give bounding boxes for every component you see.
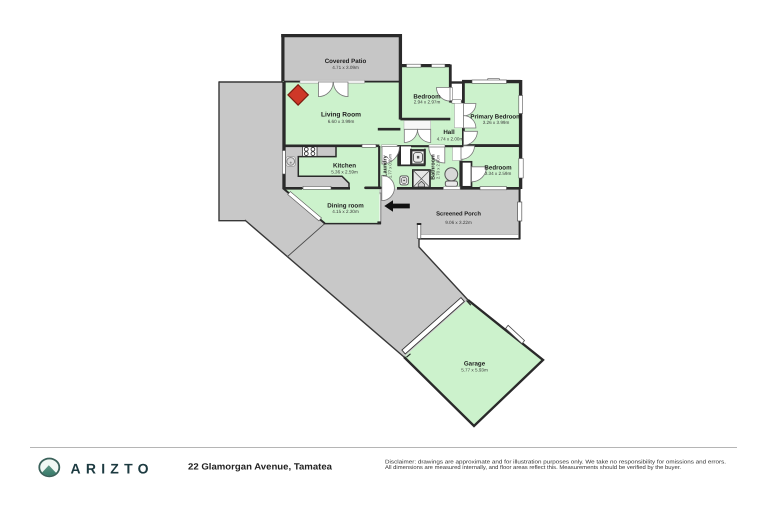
svg-text:5.77 x 5.93m: 5.77 x 5.93m (461, 367, 488, 372)
svg-text:2.94 x 2.97m: 2.94 x 2.97m (414, 100, 441, 105)
svg-text:5.36 x 2.59m: 5.36 x 2.59m (331, 170, 358, 175)
svg-text:22 Glamorgan Avenue, Tamatea: 22 Glamorgan Avenue, Tamatea (188, 461, 333, 471)
svg-text:Screened Porch: Screened Porch (436, 211, 481, 218)
svg-text:9.06 x 3.22m: 9.06 x 3.22m (445, 220, 472, 225)
svg-text:2.70 x 2.00m: 2.70 x 2.00m (436, 154, 441, 179)
svg-text:3.34 x 2.59m: 3.34 x 2.59m (485, 171, 512, 176)
svg-text:Living Room: Living Room (321, 112, 361, 119)
svg-text:Covered Patio: Covered Patio (325, 58, 367, 65)
svg-text:3.26 x 3.99m: 3.26 x 3.99m (483, 120, 510, 125)
svg-text:6.60 x 3.99m: 6.60 x 3.99m (328, 119, 355, 124)
svg-text:4.74 x 2.00m: 4.74 x 2.00m (437, 136, 464, 141)
svg-text:1.77 x 0.89m: 1.77 x 0.89m (388, 153, 393, 178)
svg-text:Hall: Hall (443, 129, 455, 136)
svg-text:4.71 x 3.09m: 4.71 x 3.09m (332, 65, 359, 70)
svg-text:Kitchen: Kitchen (333, 163, 356, 170)
svg-text:All dimensions are measured in: All dimensions are measured internally, … (385, 465, 682, 471)
svg-text:4.15 x 2.30m: 4.15 x 2.30m (332, 209, 359, 214)
svg-text:ARIZTO: ARIZTO (71, 460, 153, 476)
